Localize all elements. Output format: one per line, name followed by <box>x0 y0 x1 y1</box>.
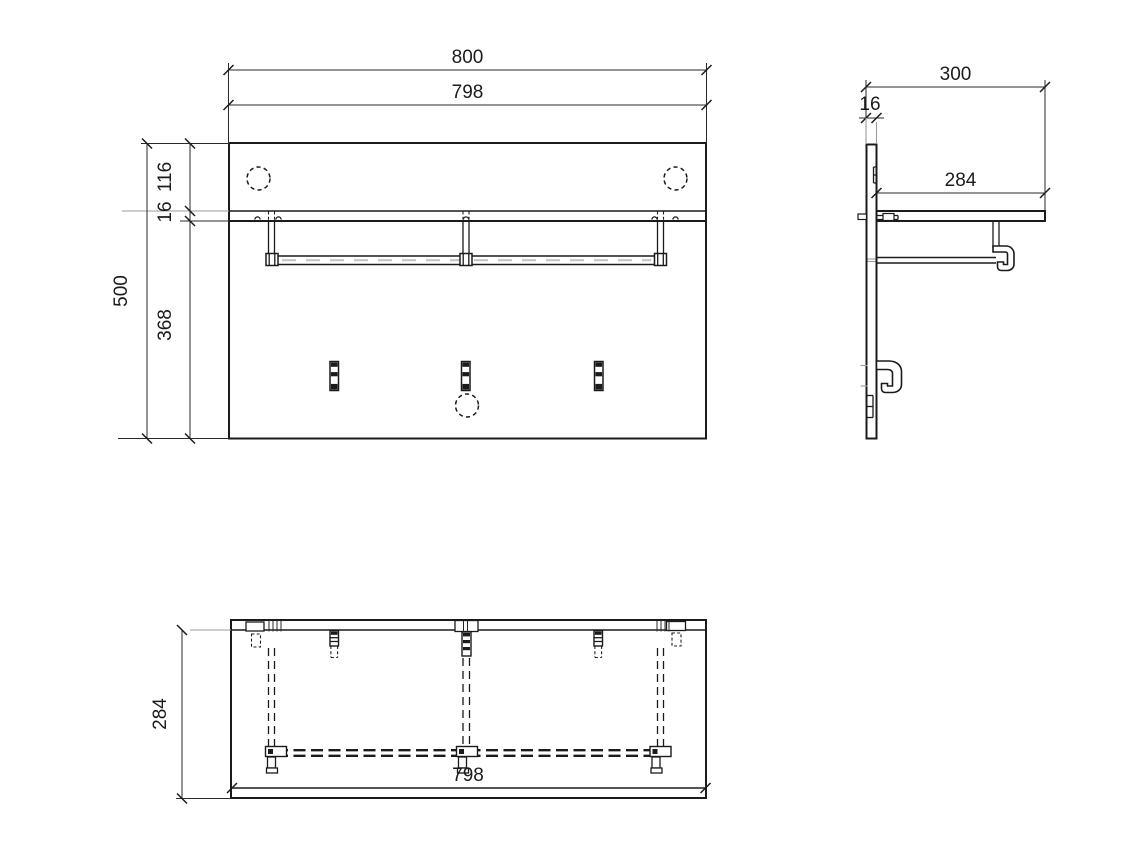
front-view: 800 798 500 116 16 368 <box>111 47 712 444</box>
shelf-screw-marks <box>255 217 678 220</box>
side-shelf-bracket <box>858 214 898 221</box>
dim-side-shelf-depth: 284 <box>945 170 977 191</box>
rail-brackets-front <box>269 221 664 254</box>
dim-front-below-shelf: 368 <box>155 309 176 341</box>
rail-bracket-foot-center <box>460 254 472 266</box>
dim-side-overall-depth: 300 <box>940 64 972 85</box>
corner-bracket-left <box>246 622 264 647</box>
side-coat-hook <box>877 361 902 393</box>
drawing-sheet: 800 798 500 116 16 368 <box>0 0 1131 848</box>
coat-hook-bottom-left <box>330 631 339 658</box>
side-dimensions: 300 16 284 <box>859 64 1050 211</box>
dim-side-panel-thickness: 16 <box>859 94 880 115</box>
coat-hook-front-left <box>330 362 339 391</box>
dim-front-overall-width: 800 <box>452 47 484 68</box>
rail-end-left <box>266 747 287 774</box>
center-bracket-plate <box>455 621 478 632</box>
rail-bracket-foot-left <box>266 254 278 266</box>
dim-front-overall-height: 500 <box>111 275 132 307</box>
side-rail-hook <box>993 246 1014 271</box>
side-panel-outline <box>867 145 877 439</box>
bracket-tabs-hidden <box>269 212 664 221</box>
rail-end-right <box>650 747 671 774</box>
rail-brackets-hidden <box>269 648 664 746</box>
coat-hook-front-right <box>595 362 604 391</box>
dim-bottom-width: 798 <box>452 765 484 786</box>
coat-hook-front-center <box>462 362 471 391</box>
coat-hook-bottom-center <box>462 632 471 656</box>
front-dimensions: 800 798 500 116 16 368 <box>111 47 712 444</box>
mount-hole-left-circle <box>247 167 270 190</box>
dim-bottom-depth: 284 <box>150 698 171 730</box>
bottom-view: 284 798 <box>150 620 711 804</box>
coat-hook-bottom-right <box>594 631 603 658</box>
mount-hole-bottom-circle <box>456 394 479 417</box>
side-shelf-outline <box>877 211 1046 221</box>
dim-front-shelf-thickness: 16 <box>155 201 176 222</box>
dim-front-top-to-shelf: 116 <box>155 162 176 192</box>
bottom-dimensions: 284 798 <box>150 625 711 804</box>
technical-drawing-canvas: 800 798 500 116 16 368 <box>0 0 1131 848</box>
rail-bracket-foot-right <box>655 254 667 266</box>
dim-front-body-width: 798 <box>452 82 484 103</box>
mount-hole-right-circle <box>664 167 687 190</box>
side-view: 300 16 284 <box>858 64 1050 439</box>
